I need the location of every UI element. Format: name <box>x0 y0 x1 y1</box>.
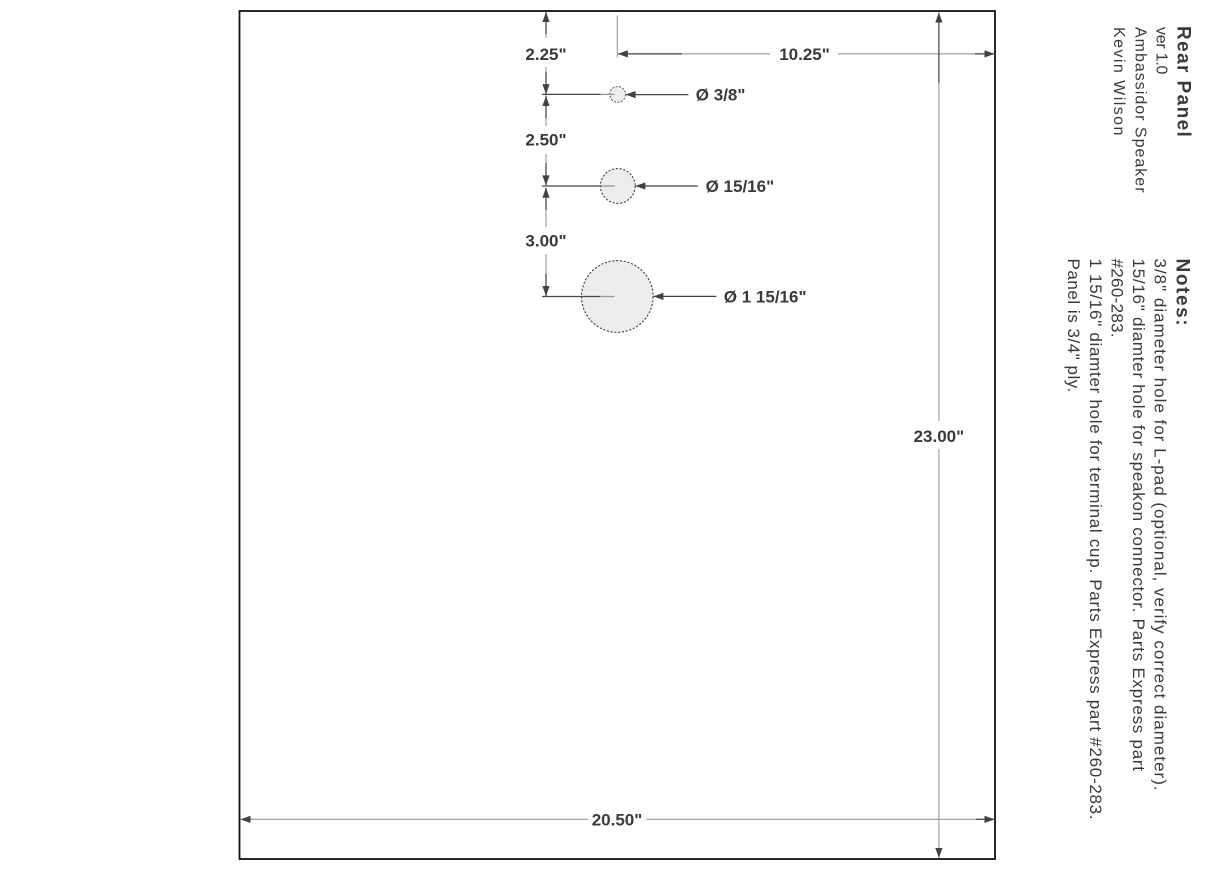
svg-text:10.25": 10.25" <box>779 45 830 64</box>
svg-text:ver 1.0: ver 1.0 <box>1152 27 1169 75</box>
svg-text:2.50": 2.50" <box>525 131 566 150</box>
svg-text:3.00": 3.00" <box>525 232 566 251</box>
svg-text:20.50": 20.50" <box>592 810 643 829</box>
svg-text:23.00": 23.00" <box>914 427 965 446</box>
svg-text:15/16" diamter hole for speako: 15/16" diamter hole for speakon connecto… <box>1129 259 1148 772</box>
svg-text:1 15/16" diamter hole for term: 1 15/16" diamter hole for terminal cup. … <box>1086 259 1105 821</box>
svg-text:Ø 1 15/16": Ø 1 15/16" <box>724 287 807 306</box>
svg-text:Rear Panel: Rear Panel <box>1173 26 1194 138</box>
svg-text:Ø 15/16": Ø 15/16" <box>706 177 775 196</box>
svg-text:Kevin Wilson: Kevin Wilson <box>1110 27 1127 137</box>
svg-text:#260-283.: #260-283. <box>1107 259 1126 338</box>
svg-text:Ambassidor Speaker: Ambassidor Speaker <box>1132 27 1149 194</box>
svg-text:Panel is 3/4" ply.: Panel is 3/4" ply. <box>1064 259 1083 393</box>
svg-text:2.25": 2.25" <box>525 45 566 64</box>
svg-text:Notes:: Notes: <box>1172 259 1193 328</box>
svg-text:3/8" diameter hole for L-pad (: 3/8" diameter hole for L-pad (optional, … <box>1151 259 1170 792</box>
svg-text:Ø 3/8": Ø 3/8" <box>696 86 746 105</box>
